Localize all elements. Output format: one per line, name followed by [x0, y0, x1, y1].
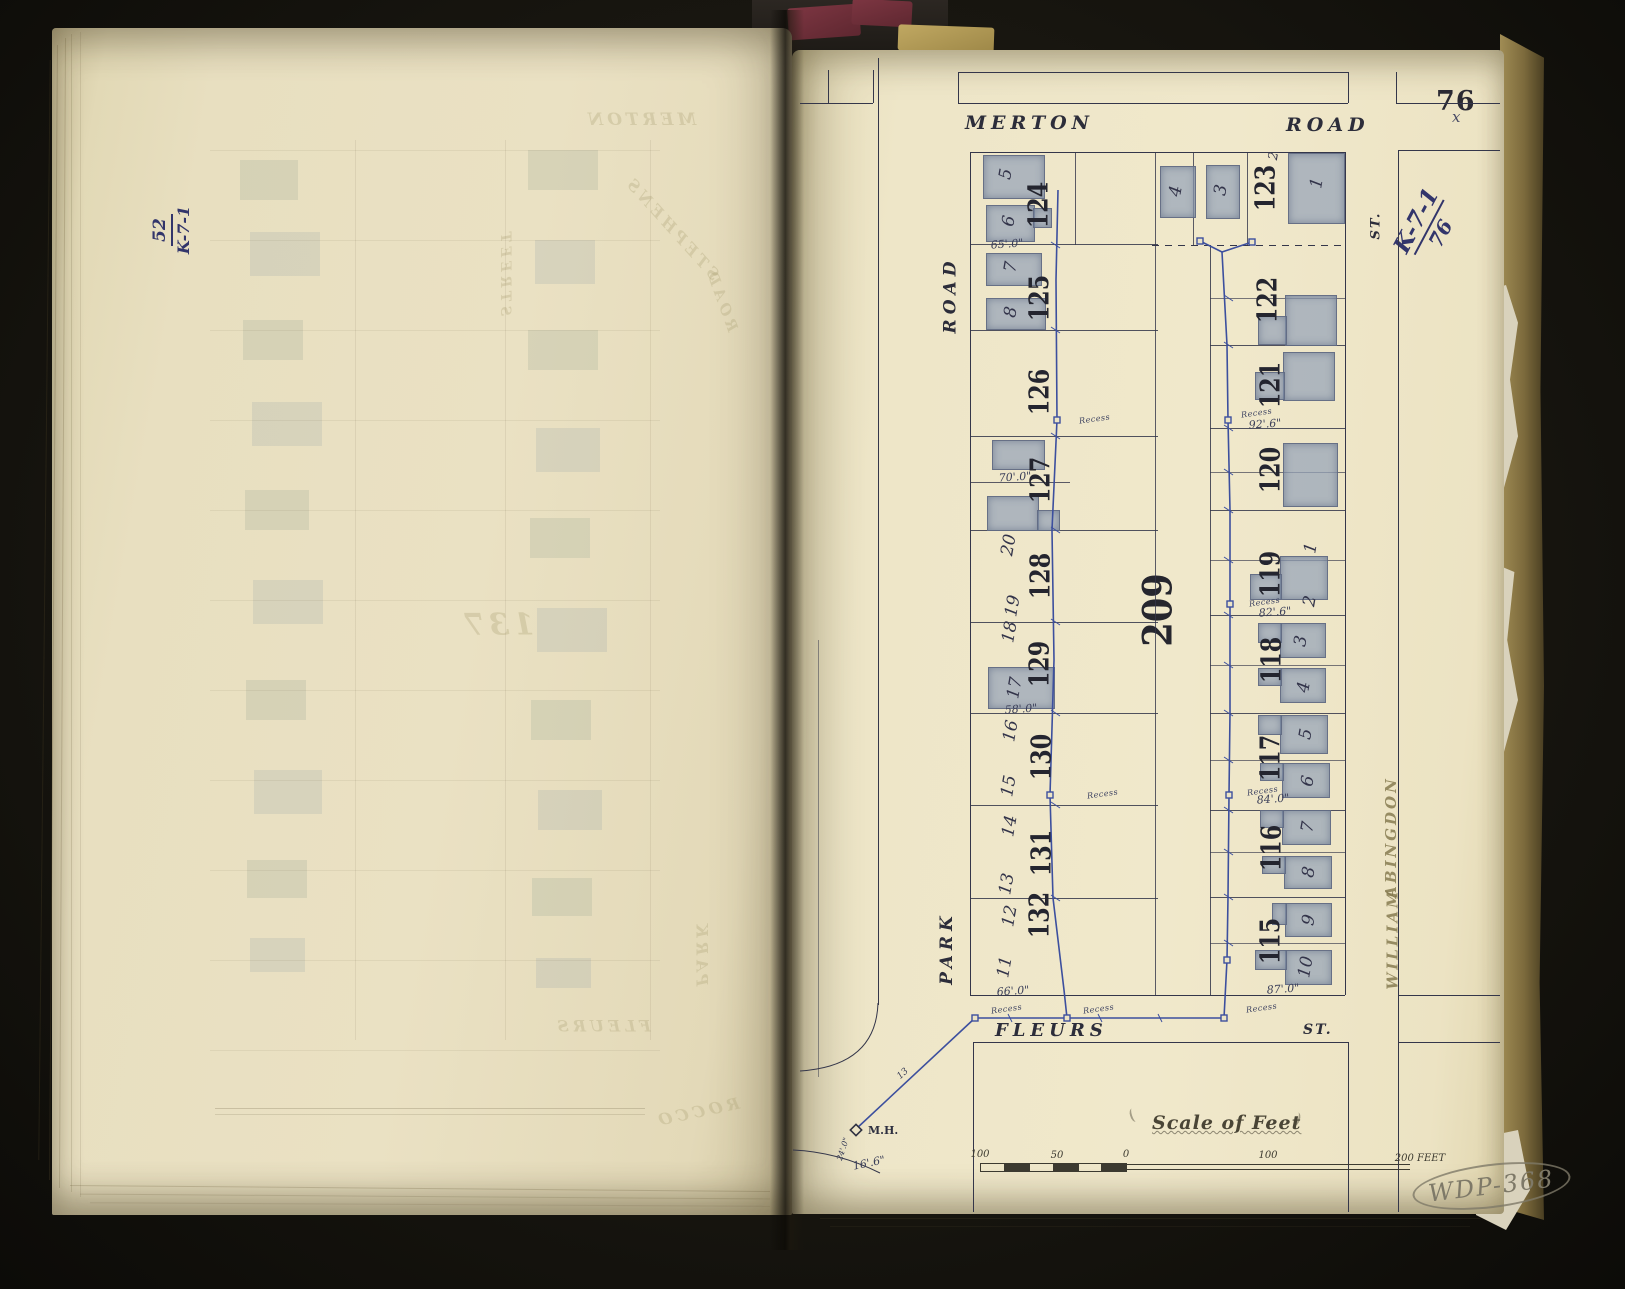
lot-number: 120	[1256, 447, 1287, 493]
lot-number: 121	[1256, 362, 1287, 408]
lot-number: 129	[1025, 641, 1056, 687]
dimension-label: 58'.0"	[1004, 701, 1037, 716]
lot-number: 115	[1256, 918, 1287, 964]
pipe-tick	[1051, 327, 1060, 333]
scale-label: 200 FEET	[1395, 1153, 1445, 1164]
pipe-junction	[1226, 792, 1232, 798]
scale-segment	[1004, 1163, 1030, 1172]
lot-number: 126	[1025, 369, 1056, 415]
lot-number: 130	[1027, 734, 1058, 780]
manhole-label: M.H.	[868, 1124, 898, 1137]
pipe-junction	[1064, 1015, 1070, 1021]
dimension-label: 65'.0"	[990, 236, 1023, 251]
pipe-tick	[1051, 619, 1060, 625]
pipe-junction	[1227, 601, 1233, 607]
house-number: 20	[997, 533, 1020, 558]
scale-segment	[1101, 1163, 1127, 1172]
house-number: 17	[1003, 676, 1026, 701]
water-pipe	[1222, 242, 1252, 252]
pipe-junction	[1197, 238, 1203, 244]
pipe-junction	[1221, 1015, 1227, 1021]
pipe-tick	[1224, 342, 1233, 348]
pipe-tick	[1224, 557, 1233, 563]
lot-number: 116	[1257, 825, 1288, 871]
dimension-label: 92'.6"	[1248, 416, 1281, 431]
scale-title: Scale of Feet	[1152, 1112, 1301, 1134]
pipe-junction	[1224, 957, 1230, 963]
house-number: 19	[1001, 594, 1024, 619]
pipe-junction	[1054, 417, 1060, 423]
house-number: 11	[993, 955, 1016, 980]
lot-number: 119	[1256, 551, 1287, 597]
scale-segment	[1053, 1163, 1079, 1172]
house-number: 10	[1294, 955, 1317, 980]
dimension-label: 87'.0"	[1266, 981, 1299, 996]
road-curve	[800, 1003, 878, 1071]
water-pipe	[1222, 252, 1230, 1018]
pipe-junction	[1249, 239, 1255, 245]
scale-label: 50	[1051, 1150, 1064, 1161]
scale-segment	[980, 1163, 1006, 1172]
pipe-junction	[1225, 417, 1231, 423]
pipe-tick	[1224, 662, 1233, 668]
scale-segment	[1028, 1163, 1054, 1172]
pipe-tick	[1224, 757, 1233, 763]
pipe-tick	[1224, 710, 1233, 716]
lot-number: 132	[1025, 892, 1056, 938]
water-pipe	[856, 1018, 975, 1129]
book-scan: MERTONSTEPHENSROADSTREET137PARKFLEURSROC…	[0, 0, 1625, 1289]
house-number: 18	[998, 620, 1021, 645]
lot-number: 123	[1251, 165, 1282, 211]
house-number: 15	[997, 774, 1020, 799]
scale-label: 100	[970, 1149, 989, 1160]
dimension-label: 70'.0"	[998, 469, 1031, 484]
lot-number: 131	[1027, 830, 1058, 876]
lot-number: 117	[1256, 735, 1287, 781]
water-pipe-layer	[0, 0, 1625, 1289]
pipe-tick	[1051, 242, 1060, 248]
scale-segment	[1077, 1163, 1103, 1172]
lot-number: 125	[1025, 275, 1056, 321]
pipe-junction	[972, 1015, 978, 1021]
pipe-tick	[1051, 802, 1060, 808]
dimension-label: 66'.0"	[996, 983, 1029, 998]
house-number: 12	[998, 904, 1021, 929]
lot-number: 128	[1026, 553, 1057, 599]
lot-number: 118	[1257, 637, 1288, 683]
house-number: 14	[998, 814, 1021, 839]
pipe-tick	[1224, 507, 1233, 513]
house-number: 16	[999, 719, 1022, 744]
scale-label: 100	[1258, 1150, 1277, 1161]
lot-number: 122	[1253, 277, 1284, 323]
scale-rule	[1126, 1164, 1410, 1170]
pipe-tick	[1224, 940, 1233, 946]
lot-number: 124	[1024, 182, 1055, 228]
scale-label: 0	[1123, 1149, 1129, 1160]
pipe-tick	[1224, 612, 1233, 618]
house-number: 13	[995, 872, 1018, 897]
pipe-junction	[1047, 792, 1053, 798]
